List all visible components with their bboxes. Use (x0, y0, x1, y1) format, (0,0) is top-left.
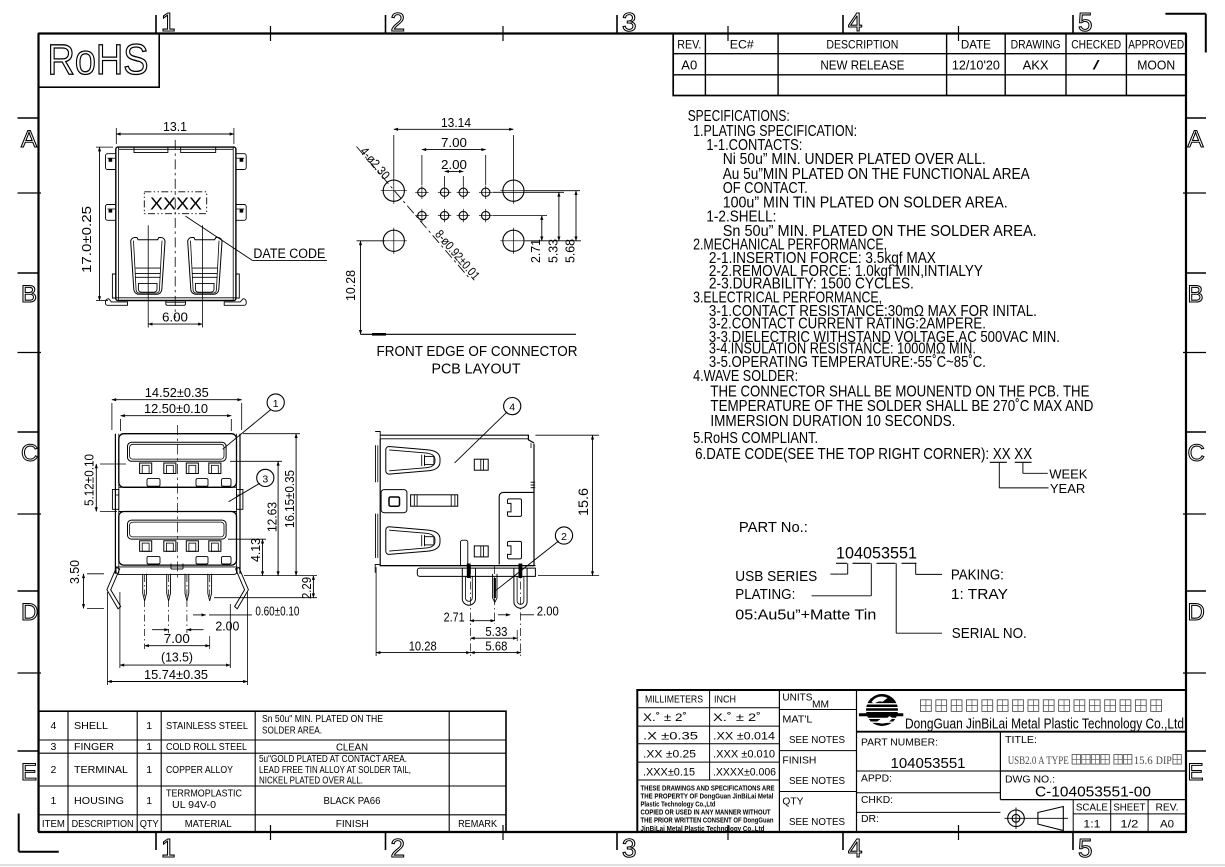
svg-text:SHELL: SHELL (74, 720, 108, 732)
svg-text:D: D (21, 599, 38, 626)
svg-text:7.00: 7.00 (441, 136, 467, 150)
svg-text:13.1: 13.1 (163, 120, 187, 134)
svg-text:(13.5): (13.5) (161, 651, 193, 665)
svg-text:SERIAL NO.: SERIAL NO. (952, 625, 1027, 642)
svg-text:4: 4 (848, 7, 862, 37)
svg-text:QTY: QTY (140, 818, 159, 830)
svg-text:5.33: 5.33 (485, 625, 507, 639)
svg-text:MM: MM (812, 699, 829, 711)
svg-text:2.00: 2.00 (215, 619, 239, 633)
svg-text:2.00: 2.00 (441, 158, 467, 172)
svg-text:5: 5 (1078, 833, 1092, 863)
svg-text:A: A (21, 126, 37, 153)
svg-text:3: 3 (50, 741, 56, 753)
svg-text:.XXX ±0.010: .XXX ±0.010 (713, 749, 775, 761)
svg-text:FRONT EDGE OF CONNECTOR: FRONT EDGE OF CONNECTOR (377, 344, 578, 360)
svg-text:APPD:: APPD: (861, 773, 892, 785)
svg-text:E: E (21, 759, 37, 786)
svg-text:17.0±0.25: 17.0±0.25 (80, 206, 94, 273)
svg-text:2: 2 (561, 531, 567, 543)
svg-text:A0: A0 (1160, 819, 1174, 831)
svg-text:DRAWING: DRAWING (1011, 40, 1061, 52)
svg-text:X.˚ ± 2˚: X.˚ ± 2˚ (643, 712, 687, 724)
svg-text:1/2: 1/2 (1120, 819, 1138, 831)
svg-text:CLEAN: CLEAN (336, 741, 368, 753)
svg-text:YEAR: YEAR (1050, 481, 1085, 496)
svg-text:SEE NOTES: SEE NOTES (789, 816, 845, 828)
svg-text:NEW RELEASE: NEW RELEASE (820, 59, 904, 73)
svg-text:QTY: QTY (782, 796, 803, 808)
svg-text:2: 2 (391, 7, 405, 37)
svg-text:DATE CODE: DATE CODE (253, 246, 325, 261)
svg-text:AKX: AKX (1023, 59, 1050, 73)
svg-text:10.28: 10.28 (344, 270, 358, 301)
svg-text:104053551: 104053551 (891, 756, 966, 772)
svg-text:MOON: MOON (1137, 59, 1175, 73)
svg-text:DESCRIPTION: DESCRIPTION (72, 818, 134, 830)
svg-text:13.14: 13.14 (441, 116, 471, 130)
svg-text:RoHS: RoHS (48, 36, 149, 84)
svg-text:12.63: 12.63 (266, 502, 280, 532)
svg-text:/: / (1093, 59, 1101, 73)
svg-text:3.50: 3.50 (68, 560, 82, 584)
svg-text:2: 2 (50, 764, 56, 776)
svg-text:USB SERIES: USB SERIES (735, 568, 817, 585)
svg-text:.XX ±0.25: .XX ±0.25 (643, 749, 696, 761)
svg-text:15.6: 15.6 (576, 488, 591, 516)
svg-text:16.15±0.35: 16.15±0.35 (283, 470, 297, 528)
svg-text:INCH: INCH (714, 695, 736, 706)
svg-text:FINISH: FINISH (336, 818, 369, 830)
svg-text:3: 3 (262, 473, 268, 485)
svg-text:12.50±0.10: 12.50±0.10 (144, 402, 208, 416)
svg-text:2.71: 2.71 (444, 610, 465, 624)
svg-text:PART NUMBER:: PART NUMBER: (861, 737, 938, 749)
svg-text:4: 4 (848, 833, 862, 863)
svg-text:B: B (1188, 281, 1204, 308)
svg-text:.XXX±0.15: .XXX±0.15 (643, 767, 695, 779)
svg-text:UNITS: UNITS (782, 692, 812, 704)
svg-text:7.00: 7.00 (164, 632, 190, 646)
svg-text:PART No.:: PART No.: (739, 519, 808, 536)
svg-text:1: 1 (146, 741, 152, 753)
svg-text:E: E (1188, 759, 1204, 786)
svg-text:DR:: DR: (861, 813, 879, 825)
svg-text:SHEET: SHEET (1113, 802, 1146, 814)
svg-text:1: 1 (161, 833, 175, 863)
svg-text:1:1: 1:1 (1083, 819, 1100, 831)
svg-text:COLD ROLL STEEL: COLD ROLL STEEL (166, 741, 247, 753)
svg-text:6.DATE CODE(SEE THE TOP RIGHT: 6.DATE CODE(SEE THE TOP RIGHT CORNER): X… (695, 446, 1032, 463)
svg-text:SOLDER AREA.: SOLDER AREA. (262, 725, 322, 737)
svg-text:COPPER ALLOY: COPPER ALLOY (166, 764, 233, 776)
svg-text:6.00: 6.00 (162, 311, 188, 325)
svg-text:STAINLESS STEEL: STAINLESS STEEL (166, 720, 248, 732)
svg-text:XXXX: XXXX (150, 193, 202, 213)
svg-text:DESCRIPTION: DESCRIPTION (826, 40, 898, 52)
svg-text:C-104053551-00: C-104053551-00 (1035, 784, 1151, 801)
svg-text:IMMERSION DURATION 10 SECONDS.: IMMERSION DURATION 10 SECONDS. (710, 413, 955, 430)
svg-text:5.RoHS COMPLIANT.: 5.RoHS COMPLIANT. (693, 430, 818, 447)
svg-text:APPROVED: APPROVED (1128, 40, 1184, 52)
svg-text:14.52±0.35: 14.52±0.35 (145, 386, 209, 400)
svg-text:1: 1 (161, 7, 175, 37)
svg-text:10.28: 10.28 (409, 640, 437, 654)
svg-text:3: 3 (622, 7, 636, 37)
svg-text:2: 2 (391, 833, 405, 863)
svg-text:CHECKED: CHECKED (1071, 40, 1121, 52)
svg-text:1: 1 (146, 764, 152, 776)
svg-text:REV.: REV. (677, 40, 701, 52)
svg-text:.X ±0.35: .X ±0.35 (643, 730, 698, 742)
svg-text:3: 3 (622, 833, 636, 863)
svg-text:MAT'L: MAT'L (782, 714, 812, 726)
svg-text:A0: A0 (681, 59, 697, 73)
svg-text:C: C (21, 440, 38, 467)
svg-text:DATE: DATE (961, 40, 991, 52)
svg-text:X.˚ ± 2˚: X.˚ ± 2˚ (713, 712, 761, 724)
svg-text:2.29: 2.29 (300, 577, 314, 599)
svg-text:WEEK: WEEK (1049, 467, 1088, 482)
svg-text:15.74±0.35: 15.74±0.35 (144, 668, 208, 682)
svg-text:.XX ±0.014: .XX ±0.014 (713, 730, 775, 742)
svg-text:D: D (1188, 599, 1205, 626)
svg-text:PAKING:: PAKING: (951, 567, 1004, 584)
svg-text:4.13: 4.13 (249, 538, 263, 562)
svg-text:BLACK PA66: BLACK PA66 (324, 795, 381, 807)
svg-text:4: 4 (509, 402, 515, 414)
svg-text:2.71: 2.71 (529, 239, 543, 263)
svg-text:5.68: 5.68 (485, 640, 507, 654)
svg-text:1: 1 (146, 795, 152, 807)
svg-text:SEE NOTES: SEE NOTES (789, 734, 845, 746)
svg-text:05:Au5u”+Matte Tin: 05:Au5u”+Matte Tin (735, 607, 876, 624)
svg-text:UL 94V-0: UL 94V-0 (172, 799, 216, 811)
svg-text:CHKD:: CHKD: (861, 794, 893, 806)
svg-text:5.68: 5.68 (563, 239, 577, 263)
svg-text:104053551: 104053551 (836, 544, 917, 563)
svg-text:REMARK: REMARK (458, 818, 497, 830)
svg-text:DongGuan JinBiLai Metal Plasti: DongGuan JinBiLai Metal Plastic Technolo… (905, 717, 1184, 733)
svg-text:1: 1 (146, 720, 152, 732)
svg-text:REV.: REV. (1156, 802, 1179, 814)
svg-text:5.33: 5.33 (546, 239, 560, 263)
svg-text:MILLIMETERS: MILLIMETERS (645, 695, 703, 706)
svg-text:MATERIAL: MATERIAL (185, 818, 232, 830)
svg-text:.XXXX±0.006: .XXXX±0.006 (713, 767, 776, 779)
svg-text:A: A (1188, 126, 1204, 153)
svg-text:TITLE:: TITLE: (1005, 735, 1037, 746)
svg-text:12/10'20: 12/10'20 (952, 59, 1000, 73)
svg-text:15.6: 15.6 (1134, 753, 1153, 767)
svg-text:DIP: DIP (1156, 753, 1172, 767)
svg-text:TERRMOPLASTIC: TERRMOPLASTIC (166, 788, 242, 800)
svg-text:FINGER: FINGER (74, 741, 114, 753)
svg-text:SCALE: SCALE (1076, 802, 1108, 814)
svg-text:B: B (21, 281, 37, 308)
svg-text:Sn 50u" MIN. PLATED ON THE: Sn 50u" MIN. PLATED ON THE (262, 713, 383, 725)
svg-text:0.60±0.10: 0.60±0.10 (255, 605, 299, 619)
svg-text:ITEM: ITEM (42, 818, 65, 830)
svg-text:1: 1 (50, 795, 56, 807)
svg-text:TERMINAL: TERMINAL (74, 764, 128, 776)
svg-text:EC#: EC# (730, 40, 755, 52)
svg-text:FINISH: FINISH (782, 755, 816, 767)
svg-text:JinBiLai Metal Plastic Technol: JinBiLai Metal Plastic Technology Co.,Lt… (641, 824, 765, 833)
svg-text:1: 1 (273, 398, 279, 410)
svg-text:2.00: 2.00 (537, 605, 559, 619)
svg-text:PCB LAYOUT: PCB LAYOUT (432, 362, 521, 378)
svg-text:SEE NOTES: SEE NOTES (789, 775, 845, 787)
svg-text:1: TRAY: 1: TRAY (951, 586, 1008, 603)
svg-text:HOUSING: HOUSING (74, 795, 124, 807)
svg-text:PLATING:: PLATING: (735, 586, 795, 603)
svg-text:5.12±0.10: 5.12±0.10 (83, 454, 97, 506)
svg-text:USB2.0 A TYPE: USB2.0 A TYPE (1008, 753, 1069, 767)
svg-text:5: 5 (1078, 7, 1092, 37)
svg-text:C: C (1188, 440, 1205, 467)
svg-text:NICKEL PLATED OVER ALL.: NICKEL PLATED OVER ALL. (259, 774, 363, 786)
svg-text:4: 4 (50, 720, 56, 732)
